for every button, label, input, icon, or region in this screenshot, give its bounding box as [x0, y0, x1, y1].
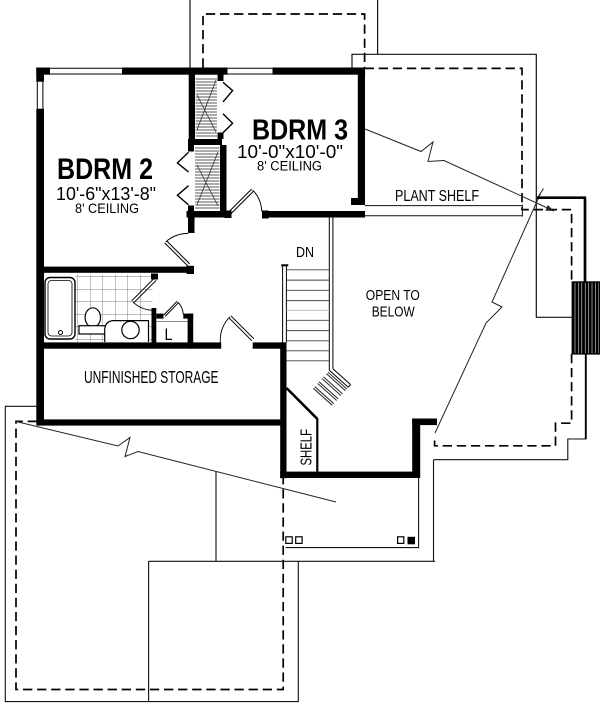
svg-text:BDRM 2: BDRM 2 [57, 153, 153, 186]
svg-text:8' CEILING: 8' CEILING [257, 159, 322, 174]
svg-text:BELOW: BELOW [372, 305, 415, 321]
svg-text:SHELF: SHELF [299, 429, 316, 466]
svg-text:DN: DN [296, 244, 314, 261]
svg-text:UNFINISHED STORAGE: UNFINISHED STORAGE [84, 367, 219, 387]
svg-text:8' CEILING: 8' CEILING [75, 200, 139, 216]
svg-text:L: L [165, 325, 173, 344]
svg-text:PLANT SHELF: PLANT SHELF [395, 188, 479, 205]
svg-text:OPEN TO: OPEN TO [366, 288, 420, 304]
